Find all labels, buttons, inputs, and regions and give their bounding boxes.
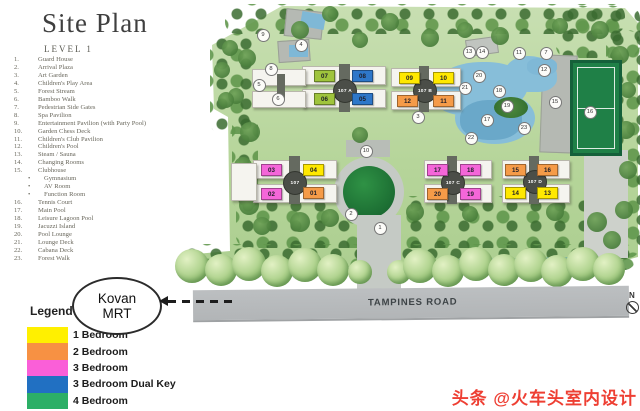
tree (620, 82, 636, 98)
tree (406, 203, 424, 221)
facility-marker: 4 (295, 39, 308, 52)
tree (552, 18, 568, 34)
tree (317, 254, 349, 286)
unit-chip: 20 (427, 188, 448, 200)
unit-chip: 07 (314, 70, 335, 82)
tree (222, 40, 238, 56)
facility-marker: 16 (584, 106, 597, 119)
facility-marker: 19 (501, 100, 514, 113)
arrowhead-icon (159, 296, 168, 306)
facility-marker: 3 (412, 111, 425, 124)
unit-chip: 02 (261, 188, 282, 200)
tree (321, 209, 339, 227)
site-plan-map: TAMPINES ROAD N 107 A107 B107107 C107 D … (0, 0, 640, 411)
facility-marker: 9 (257, 29, 270, 42)
tree (348, 260, 372, 284)
tree (352, 32, 368, 48)
unit-chip: 18 (460, 164, 481, 176)
site-plan-page: Site Plan LEVEL 1 1.Guard House2.Arrival… (0, 0, 640, 411)
tampines-road: TAMPINES ROAD (193, 286, 629, 323)
tree (457, 22, 473, 38)
unit-chip: 17 (427, 164, 448, 176)
unit-chip: 06 (314, 93, 335, 105)
unit-chip: 11 (433, 95, 454, 107)
tree (593, 253, 625, 285)
mrt-label-line1: Kovan (98, 291, 136, 306)
tree (591, 21, 609, 39)
road-label: TAMPINES ROAD (368, 297, 458, 309)
tree (290, 212, 310, 232)
unit-chip: 05 (352, 93, 373, 105)
compass-icon (626, 301, 639, 314)
facility-marker: 13 (463, 46, 476, 59)
facility-marker: 14 (476, 46, 489, 59)
watermark: 头条 @火车头室内设计 (452, 384, 637, 409)
tree (603, 231, 621, 249)
unit-chip: 09 (399, 72, 420, 84)
facility-marker: 17 (481, 114, 494, 127)
tree (240, 122, 260, 142)
tree (214, 62, 230, 78)
facility-marker: 12 (538, 64, 551, 77)
unit-chip: 15 (505, 164, 526, 176)
facility-marker: 18 (493, 85, 506, 98)
facility-marker: 20 (473, 70, 486, 83)
tree (238, 49, 256, 67)
facility-marker: 21 (459, 82, 472, 95)
facility-marker: 11 (513, 47, 526, 60)
tree (381, 13, 399, 31)
tennis-court (570, 60, 622, 156)
tree (421, 29, 439, 47)
tree (253, 217, 271, 235)
tree (352, 127, 368, 143)
compass-north-label: N (629, 291, 635, 300)
facility-marker: 2 (345, 208, 358, 221)
unit-chip: 14 (505, 187, 526, 199)
unit-chip: 16 (537, 164, 558, 176)
tree (175, 249, 209, 283)
tree (546, 203, 564, 221)
unit-chip: 13 (537, 187, 558, 199)
tree (491, 27, 509, 45)
tree (462, 206, 478, 222)
unit-chip: 03 (261, 164, 282, 176)
unit-chip: 08 (352, 70, 373, 82)
tree (218, 92, 234, 108)
unit-chip: 01 (303, 187, 324, 199)
unit-chip: 04 (303, 164, 324, 176)
unit-chip: 10 (433, 72, 454, 84)
facility-marker: 8 (265, 63, 278, 76)
building-slab (231, 163, 257, 201)
facility-marker: 6 (272, 93, 285, 106)
facility-marker: 5 (253, 79, 266, 92)
facility-marker: 23 (518, 122, 531, 135)
unit-chip: 19 (460, 188, 481, 200)
tree (619, 161, 637, 179)
tree (291, 21, 309, 39)
mrt-dashed-arrow (168, 300, 238, 303)
facility-marker: 1 (374, 222, 387, 235)
unit-chip: 12 (397, 95, 418, 107)
mrt-label-line2: MRT (103, 306, 132, 321)
facility-marker: 22 (465, 132, 478, 145)
tree (615, 201, 633, 219)
tree (587, 212, 607, 232)
facility-marker: 7 (540, 47, 553, 60)
facility-marker: 10 (360, 145, 373, 158)
tree (322, 6, 338, 22)
kovan-mrt-oval: Kovan MRT (72, 277, 162, 335)
facility-marker: 15 (549, 96, 562, 109)
